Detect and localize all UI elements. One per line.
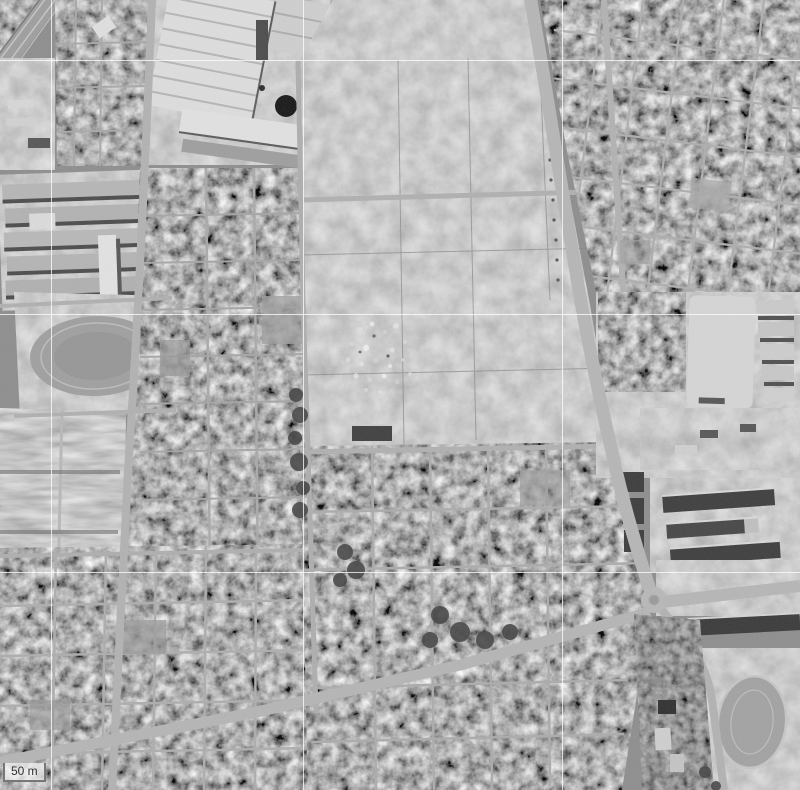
film-grain <box>0 0 800 790</box>
map-viewport: 50 m <box>0 0 800 790</box>
map-canvas[interactable]: 50 m <box>0 0 800 790</box>
aerial-photo <box>0 0 800 790</box>
scale-bar: 50 m <box>3 763 46 782</box>
scale-control: 50 m <box>3 763 46 782</box>
